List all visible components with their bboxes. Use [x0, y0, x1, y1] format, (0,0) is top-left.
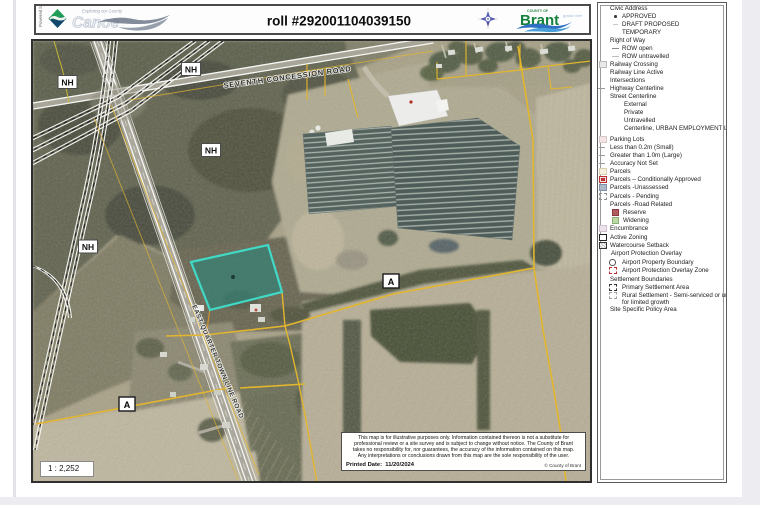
svg-text:NH: NH [205, 146, 217, 156]
svg-text:NH: NH [82, 242, 94, 252]
svg-text:NH: NH [185, 65, 197, 75]
svg-text:grand river: grand river [563, 13, 583, 18]
svg-text:A: A [124, 400, 131, 410]
svg-text:NH: NH [61, 78, 73, 88]
svg-text:Powered by: Powered by [38, 6, 43, 27]
svg-text:Canoe: Canoe [72, 15, 120, 32]
svg-text:roll #292001104039150: roll #292001104039150 [267, 14, 411, 29]
svg-text:Exploring our County: Exploring our County [82, 9, 123, 14]
svg-text:A: A [388, 277, 395, 287]
